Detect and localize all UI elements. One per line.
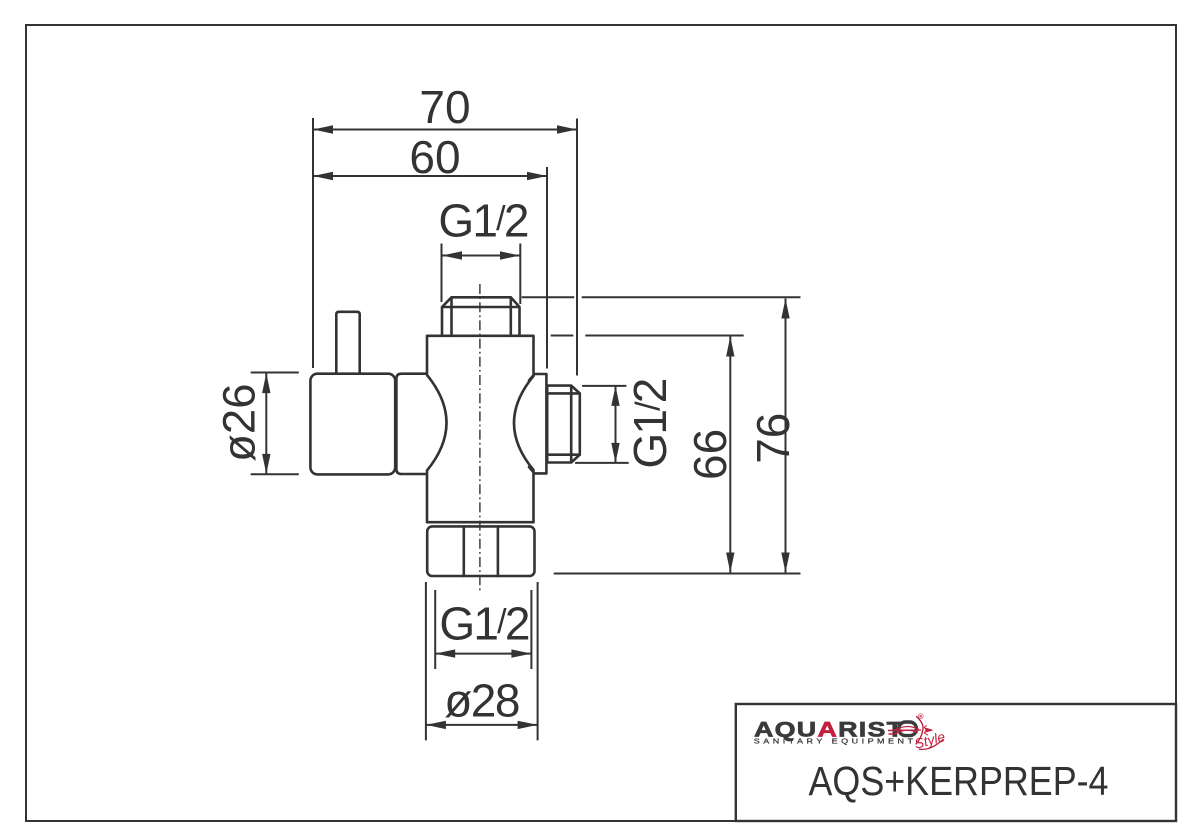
svg-text:G1/2: G1/2 <box>439 598 528 650</box>
svg-text:®: ® <box>918 712 924 721</box>
svg-text:70: 70 <box>419 81 470 133</box>
svg-text:ø28: ø28 <box>444 675 519 727</box>
svg-text:G1/2: G1/2 <box>624 379 676 468</box>
svg-text:AQS+KERPREP-4: AQS+KERPREP-4 <box>808 759 1108 805</box>
svg-text:66: 66 <box>684 429 736 480</box>
svg-text:76: 76 <box>747 413 799 464</box>
svg-text:G1/2: G1/2 <box>438 195 527 247</box>
svg-text:60: 60 <box>409 131 460 183</box>
svg-text:SANITARY EQUIPMENT: SANITARY EQUIPMENT <box>754 737 917 745</box>
svg-text:ø26: ø26 <box>214 383 265 461</box>
